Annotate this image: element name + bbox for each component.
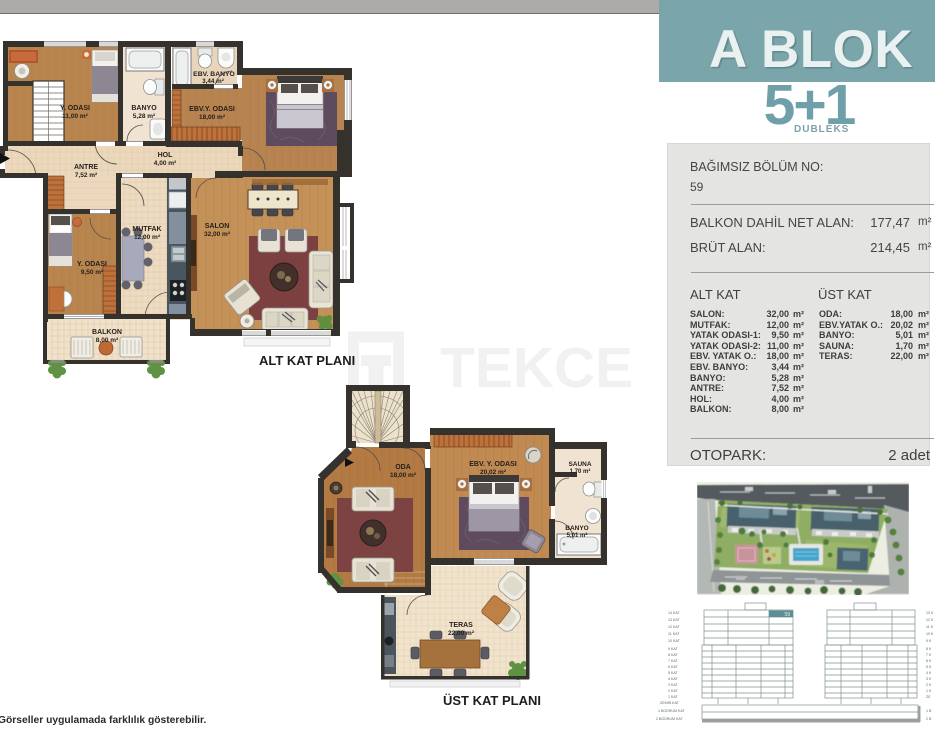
svg-text:5 KAT: 5 KAT — [668, 671, 679, 675]
svg-text:BANYO: BANYO — [565, 525, 588, 532]
svg-text:4 KAT: 4 KAT — [668, 677, 679, 681]
svg-text:18,00 m²: 18,00 m² — [199, 114, 226, 121]
svg-text:5,01 m²: 5,01 m² — [567, 532, 588, 539]
svg-text:10 KAT: 10 KAT — [668, 639, 681, 643]
svg-text:12 K: 12 K — [926, 618, 934, 622]
svg-text:EBV.Y. ODASI: EBV.Y. ODASI — [189, 106, 235, 113]
svg-text:SALON: SALON — [205, 223, 230, 230]
svg-text:22,00 m²: 22,00 m² — [448, 630, 475, 637]
svg-text:EBV. BANYO: EBV. BANYO — [193, 71, 235, 78]
svg-text:2 BODRUM KAT: 2 BODRUM KAT — [656, 717, 683, 721]
svg-text:11 K: 11 K — [926, 625, 934, 629]
svg-text:ANTRE: ANTRE — [74, 164, 98, 171]
svg-text:ODA: ODA — [395, 464, 411, 471]
svg-text:1 K: 1 K — [926, 689, 932, 693]
svg-text:5,28 m²: 5,28 m² — [133, 113, 156, 120]
svg-text:8 KAT: 8 KAT — [668, 653, 679, 657]
svg-text:TERAS: TERAS — [449, 622, 473, 629]
svg-text:BANYO: BANYO — [131, 105, 157, 112]
svg-text:13 K: 13 K — [926, 611, 934, 615]
svg-text:1 B: 1 B — [926, 709, 932, 713]
svg-text:18,00 m²: 18,00 m² — [390, 472, 417, 479]
svg-text:HOL: HOL — [158, 152, 174, 159]
svg-text:ZE: ZE — [926, 695, 931, 699]
svg-text:12 KAT: 12 KAT — [668, 625, 681, 629]
svg-text:EBV. Y. ODASI: EBV. Y. ODASI — [469, 461, 517, 468]
svg-text:5 K: 5 K — [926, 665, 932, 669]
svg-text:9 KAT: 9 KAT — [668, 647, 679, 651]
svg-text:MUTFAK: MUTFAK — [132, 226, 161, 233]
svg-text:11,00 m²: 11,00 m² — [62, 113, 88, 120]
svg-text:Y. ODASI: Y. ODASI — [77, 261, 107, 268]
svg-text:10 K: 10 K — [926, 632, 934, 636]
svg-text:7 KAT: 7 KAT — [668, 659, 679, 663]
svg-text:1 KAT: 1 KAT — [668, 695, 679, 699]
svg-text:ZEMİN KAT: ZEMİN KAT — [660, 700, 680, 705]
svg-text:8,00 m²: 8,00 m² — [96, 337, 119, 344]
svg-text:9 K: 9 K — [926, 639, 932, 643]
svg-text:7,52 m²: 7,52 m² — [75, 172, 98, 179]
svg-text:3 KAT: 3 KAT — [668, 683, 679, 687]
svg-text:3,44 m²: 3,44 m² — [202, 78, 224, 85]
svg-text:59: 59 — [784, 612, 790, 618]
svg-text:4 K: 4 K — [926, 671, 932, 675]
svg-text:2 K: 2 K — [926, 683, 932, 687]
svg-text:13 KAT: 13 KAT — [668, 618, 681, 622]
svg-text:2 B: 2 B — [926, 717, 932, 721]
svg-text:9,50 m²: 9,50 m² — [81, 269, 104, 276]
svg-text:1,70 m²: 1,70 m² — [570, 468, 591, 475]
svg-text:4,00 m²: 4,00 m² — [154, 160, 177, 167]
svg-text:7 K: 7 K — [926, 653, 932, 657]
svg-text:Y. ODASI: Y. ODASI — [60, 105, 90, 112]
svg-text:12,00 m²: 12,00 m² — [134, 234, 161, 241]
svg-text:32,00 m²: 32,00 m² — [204, 231, 231, 238]
svg-text:11 KAT: 11 KAT — [668, 632, 680, 636]
svg-text:3 K: 3 K — [926, 677, 932, 681]
svg-text:20,02 m²: 20,02 m² — [480, 469, 507, 476]
svg-text:1 BODRUM KAT: 1 BODRUM KAT — [658, 709, 685, 713]
svg-text:SAUNA: SAUNA — [568, 461, 591, 468]
svg-text:14 KAT: 14 KAT — [668, 611, 681, 615]
svg-text:6 KAT: 6 KAT — [668, 665, 679, 669]
svg-text:8 K: 8 K — [926, 647, 932, 651]
svg-text:BALKON: BALKON — [92, 329, 122, 336]
svg-text:6 K: 6 K — [926, 659, 932, 663]
svg-text:2 KAT: 2 KAT — [668, 689, 679, 693]
